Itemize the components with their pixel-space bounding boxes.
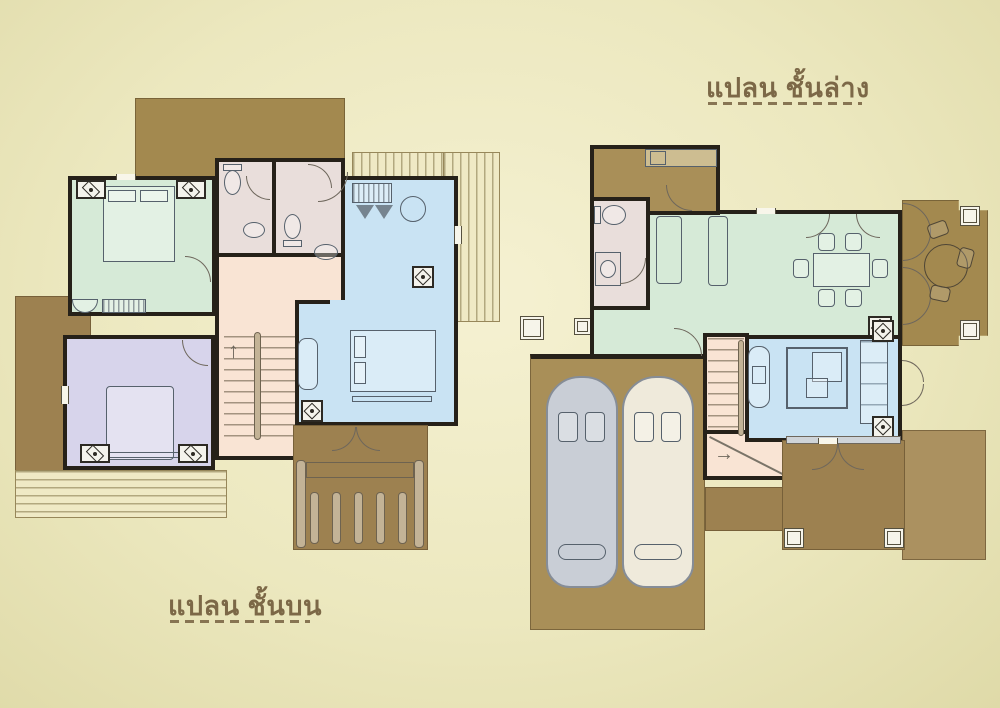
- upper-stairs-up-arrow: ↑: [228, 340, 239, 362]
- ac-unit: [176, 180, 206, 199]
- window: [756, 208, 776, 214]
- garage-column: [574, 318, 591, 335]
- sofa-ottoman: [806, 378, 828, 398]
- lower-stairs-rail: [738, 340, 744, 436]
- ac-unit: [80, 444, 110, 463]
- bed-green-pillow-2: [140, 190, 168, 202]
- toilet-bowl: [602, 205, 626, 225]
- balcony-post: [310, 492, 319, 544]
- toilet-tank: [594, 206, 601, 224]
- armchair: [298, 338, 318, 390]
- bed-master-pillow-2: [354, 362, 366, 384]
- car-gray-rear-window: [558, 544, 606, 560]
- upper-stairs-rail: [254, 332, 261, 440]
- balcony-post: [376, 492, 385, 544]
- bed-green-pillow: [108, 190, 136, 202]
- bath-sink: [600, 260, 616, 278]
- toilet-tank: [223, 164, 242, 171]
- bath-sink: [314, 244, 338, 260]
- ac-unit: [301, 400, 323, 422]
- toilet-bowl: [284, 214, 301, 239]
- porch-column: [884, 528, 904, 548]
- lower-plan-underline: [708, 102, 862, 105]
- curved-wall-arc: [902, 203, 931, 261]
- balcony-beam: [306, 462, 414, 478]
- vanity-counter: [102, 299, 146, 313]
- garage-column: [520, 316, 544, 340]
- ac-unit: [76, 180, 106, 199]
- balcony-post: [354, 492, 363, 544]
- door-arc: [902, 384, 924, 406]
- balcony-rail-right: [414, 460, 424, 548]
- lower-floor-plan: → แปลน ชั้นล่าง: [500, 0, 1000, 708]
- toilet-bowl: [224, 170, 241, 195]
- ac-unit: [178, 444, 208, 463]
- dining-chair: [872, 259, 888, 278]
- bed-purple: [106, 386, 174, 460]
- dining-chair: [818, 233, 835, 251]
- dining-chair: [845, 233, 862, 251]
- bed-bench: [352, 396, 432, 402]
- balcony-post: [398, 492, 407, 544]
- upper-floor-plan: ↑: [0, 0, 520, 708]
- terrace-column: [960, 206, 980, 226]
- bed-master-pillow: [354, 336, 366, 358]
- floor-plan-canvas: ↑: [0, 0, 1000, 708]
- window: [61, 386, 69, 404]
- porch-column: [784, 528, 804, 548]
- toilet-tank: [283, 240, 302, 247]
- dining-chair: [845, 289, 862, 307]
- terrace-column: [960, 320, 980, 340]
- upper-plan-underline: [170, 620, 310, 623]
- car-cream-window: [634, 412, 654, 442]
- wardrobe: [352, 183, 392, 203]
- bath-sink: [243, 222, 265, 238]
- wardrobe-hanger: [375, 205, 393, 219]
- car-cream-window: [661, 412, 681, 442]
- door-arc: [902, 360, 924, 382]
- entry-walkway: [705, 487, 787, 531]
- car-cream-rear-window: [634, 544, 682, 560]
- car-gray-window: [558, 412, 578, 442]
- balcony-rail-left: [296, 460, 306, 548]
- porch-threshold: [786, 436, 901, 444]
- ac-unit: [872, 416, 894, 438]
- ac-unit: [872, 320, 894, 342]
- dining-chair: [818, 289, 835, 307]
- desk-chair: [400, 196, 426, 222]
- window: [818, 438, 838, 444]
- car-gray-window: [585, 412, 605, 442]
- dining-chair: [793, 259, 809, 278]
- side-terrace-right: [902, 430, 986, 560]
- pantry-cabinet: [708, 216, 728, 286]
- balcony-post: [332, 492, 341, 544]
- window: [454, 226, 462, 244]
- ac-unit: [412, 266, 434, 288]
- deck-bottom-left: [15, 470, 227, 518]
- sofa-long: [860, 340, 888, 424]
- cabinet-piano-keys: [752, 366, 766, 384]
- pantry-cabinet: [656, 216, 682, 284]
- wardrobe-hanger: [356, 205, 374, 219]
- window: [116, 174, 136, 180]
- bed-purple-bench: [100, 452, 180, 458]
- kitchen-sink: [650, 151, 666, 165]
- bathroom-upper-left: [215, 158, 277, 257]
- dining-table: [813, 253, 870, 287]
